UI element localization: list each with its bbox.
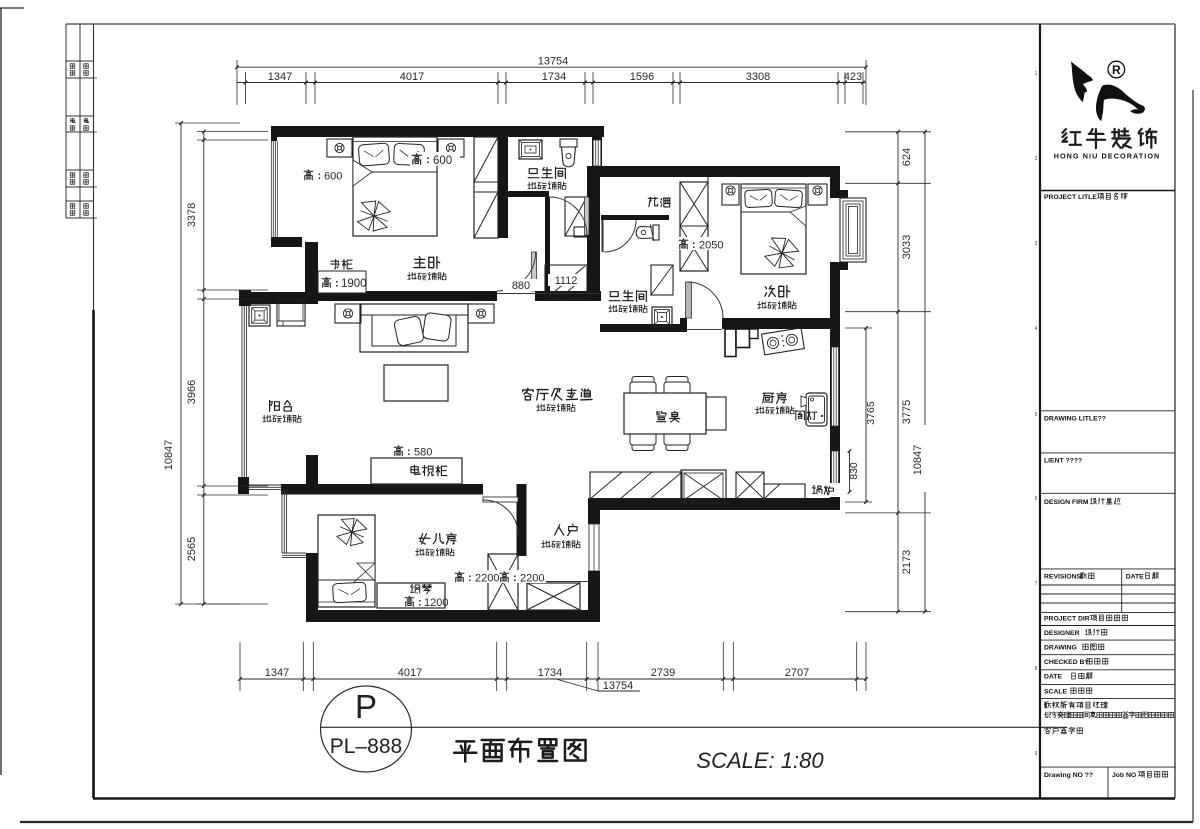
svg-text:1596: 1596 [630, 71, 654, 83]
svg-text:7: 7 [1035, 581, 1038, 587]
svg-text:3378: 3378 [186, 203, 198, 227]
svg-text:580: 580 [414, 447, 432, 459]
svg-text:423: 423 [844, 71, 862, 83]
svg-text:HONG NIU DECORATION: HONG NIU DECORATION [1054, 152, 1161, 161]
svg-text::: : [426, 154, 430, 166]
svg-text:SCALE: SCALE [1044, 688, 1068, 695]
svg-text:6: 6 [1035, 496, 1038, 502]
svg-text:3966: 3966 [186, 380, 198, 404]
svg-text:3775: 3775 [901, 400, 913, 424]
svg-text:P: P [355, 688, 377, 725]
svg-text::: : [692, 239, 696, 251]
svg-text::: : [407, 446, 411, 458]
svg-text:5: 5 [1035, 412, 1038, 418]
svg-text:1734: 1734 [538, 667, 562, 679]
svg-text:DESIGN FIRM: DESIGN FIRM [1044, 499, 1089, 506]
svg-text:R: R [1112, 63, 1121, 77]
svg-text:8: 8 [1035, 666, 1038, 672]
svg-text:PROJECT DIR: PROJECT DIR [1044, 616, 1090, 623]
svg-text:DRAWING: DRAWING [1044, 645, 1077, 652]
svg-text:DRAWING LITLE??: DRAWING LITLE?? [1044, 416, 1106, 423]
svg-text:CHECKED BY: CHECKED BY [1044, 659, 1089, 666]
svg-text:2707: 2707 [785, 667, 809, 679]
svg-text:2173: 2173 [901, 550, 913, 574]
svg-text:3: 3 [1035, 241, 1038, 247]
svg-text::: : [335, 278, 339, 290]
svg-text:880: 880 [512, 280, 530, 292]
svg-text:4: 4 [1035, 326, 1038, 332]
svg-text:SCALE: 1:80: SCALE: 1:80 [696, 748, 824, 773]
svg-text:1112: 1112 [555, 275, 578, 287]
svg-text:PROJECT LITLE: PROJECT LITLE [1044, 194, 1097, 201]
svg-text:10847: 10847 [163, 440, 175, 471]
svg-text:3308: 3308 [746, 71, 770, 83]
svg-text:13754: 13754 [538, 56, 569, 68]
svg-text:1347: 1347 [265, 667, 289, 679]
svg-text:Drawing NO ??: Drawing NO ?? [1044, 772, 1093, 779]
svg-text:3765: 3765 [865, 401, 877, 425]
svg-text:830: 830 [848, 462, 860, 480]
svg-text:4017: 4017 [400, 71, 424, 83]
svg-text:13754: 13754 [603, 680, 634, 692]
svg-text:DESIGNER: DESIGNER [1044, 630, 1080, 637]
svg-text:PL–888: PL–888 [330, 735, 402, 758]
svg-text:2565: 2565 [186, 537, 198, 561]
svg-text:1734: 1734 [542, 71, 566, 83]
svg-text:10847: 10847 [912, 445, 924, 476]
svg-text:2200: 2200 [520, 573, 544, 585]
svg-text:2: 2 [1035, 156, 1038, 162]
svg-text:9: 9 [1035, 751, 1038, 757]
svg-text:1347: 1347 [268, 71, 292, 83]
svg-text:4017: 4017 [398, 667, 422, 679]
svg-text::: : [318, 170, 322, 182]
svg-text:2050: 2050 [699, 240, 723, 252]
svg-text:Job NO: Job NO [1112, 772, 1136, 779]
svg-text:600: 600 [324, 171, 342, 183]
svg-text:1900: 1900 [341, 278, 367, 290]
svg-text:LIENT ????: LIENT ???? [1044, 458, 1082, 465]
svg-text::: : [418, 597, 422, 609]
svg-text:1: 1 [1035, 71, 1038, 77]
svg-text:DATE: DATE [1044, 674, 1062, 681]
svg-text::: : [468, 572, 472, 584]
svg-text:REVISIONS: REVISIONS [1044, 574, 1081, 581]
svg-text:2739: 2739 [651, 667, 675, 679]
svg-text:3033: 3033 [901, 235, 913, 259]
svg-text:DATE: DATE [1126, 574, 1144, 581]
svg-text:1200: 1200 [424, 597, 448, 609]
svg-text:2200: 2200 [475, 573, 499, 585]
svg-text:624: 624 [901, 148, 913, 166]
svg-text::: : [513, 572, 517, 584]
svg-text:600: 600 [433, 155, 452, 167]
